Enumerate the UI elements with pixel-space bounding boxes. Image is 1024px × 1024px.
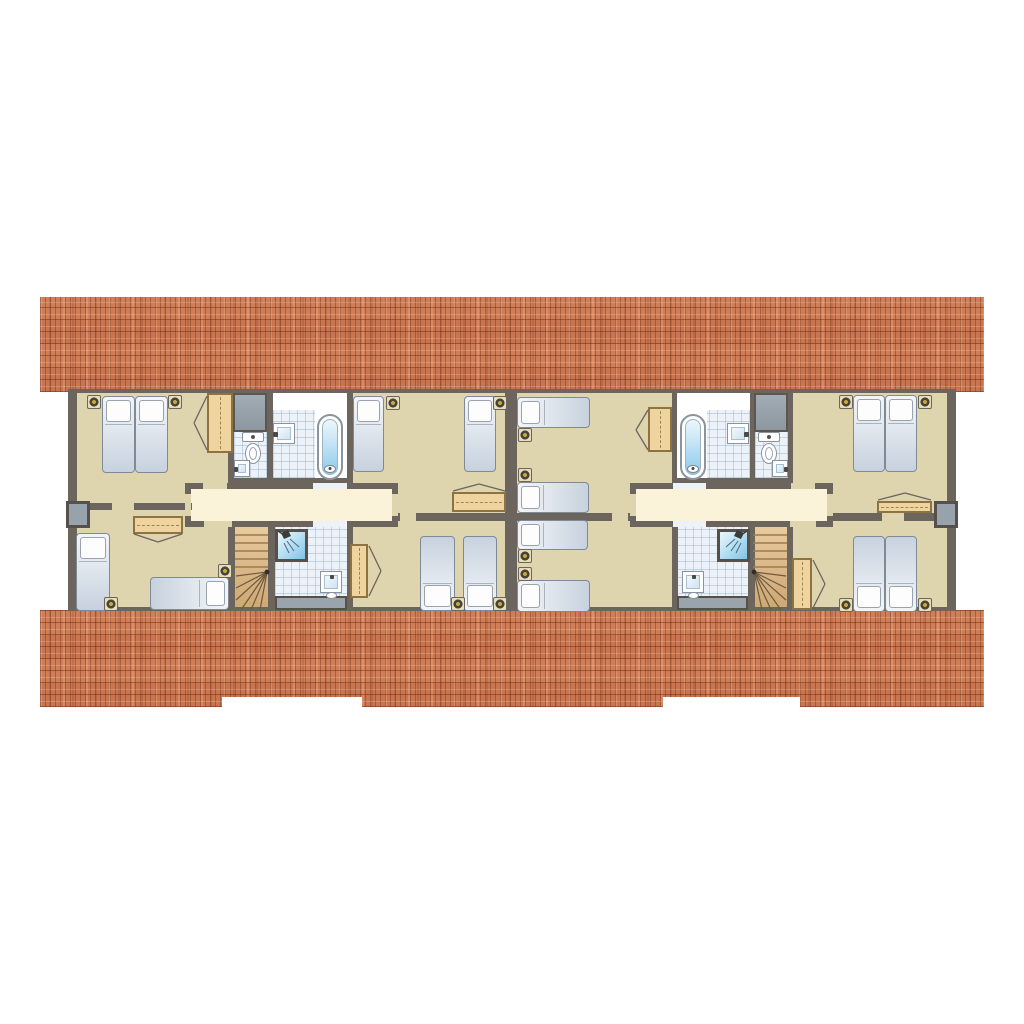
single-bed bbox=[150, 577, 229, 610]
washbasin-pedestal bbox=[688, 592, 699, 599]
washbasin-pedestal bbox=[326, 592, 337, 599]
bedside-lamp-icon bbox=[918, 598, 932, 612]
bathtub bbox=[317, 414, 343, 480]
door-opening bbox=[203, 483, 227, 489]
door-opening bbox=[392, 494, 398, 516]
door-opening bbox=[630, 494, 636, 516]
washbasin bbox=[682, 571, 704, 593]
shower-room-counter-left bbox=[275, 596, 347, 610]
single-bed bbox=[464, 396, 496, 472]
bedside-lamp-icon bbox=[87, 395, 101, 409]
door-opening bbox=[313, 483, 347, 489]
washbasin bbox=[320, 571, 342, 593]
door-opening bbox=[185, 494, 191, 516]
bedside-lamp-icon bbox=[386, 396, 400, 410]
bedside-lamp-icon bbox=[104, 597, 118, 611]
single-bed bbox=[517, 580, 590, 612]
wardrobe bbox=[207, 393, 233, 453]
flue-box-left bbox=[66, 501, 90, 528]
bedside-lamp-icon bbox=[518, 567, 532, 581]
door-opening bbox=[673, 483, 706, 489]
shower-cabin bbox=[717, 529, 750, 562]
bedside-lamp-icon bbox=[839, 395, 853, 409]
exterior-wall-right bbox=[947, 389, 956, 611]
door-opening bbox=[827, 494, 833, 516]
stairs-left bbox=[235, 527, 268, 611]
single-bed bbox=[353, 396, 384, 472]
toilet-tank bbox=[242, 432, 264, 442]
flue-box-right bbox=[934, 501, 958, 528]
bedside-lamp-icon bbox=[839, 598, 853, 612]
washbasin bbox=[727, 423, 749, 444]
single-bed bbox=[463, 536, 497, 611]
door-opening bbox=[400, 513, 416, 521]
bedside-lamp-icon bbox=[918, 395, 932, 409]
wall-bedroom5-bath-right bbox=[672, 391, 677, 484]
door-opening bbox=[112, 503, 134, 510]
wall-wc-bedroom6-right bbox=[788, 391, 793, 484]
bedside-lamp-icon bbox=[493, 597, 507, 611]
door-opening bbox=[204, 521, 232, 527]
dresser bbox=[133, 516, 183, 534]
single-bed bbox=[102, 396, 135, 473]
wardrobe bbox=[792, 558, 812, 610]
hand-basin bbox=[772, 460, 788, 477]
roof-eaves-notch-right bbox=[663, 697, 800, 707]
single-bed bbox=[885, 395, 917, 472]
door-opening bbox=[882, 513, 904, 521]
wall-stairs-shower-left bbox=[268, 527, 275, 610]
door-opening bbox=[313, 521, 347, 527]
single-bed bbox=[517, 520, 588, 550]
single-bed bbox=[135, 396, 168, 473]
single-bed bbox=[517, 482, 589, 513]
single-bed bbox=[853, 536, 885, 612]
single-bed bbox=[517, 397, 590, 428]
roof-eaves-notch-left bbox=[222, 697, 362, 707]
toilet-tank bbox=[758, 432, 780, 442]
dresser bbox=[452, 492, 506, 512]
stairs-right bbox=[753, 527, 787, 611]
shower-room-counter-right bbox=[677, 596, 748, 610]
bedside-lamp-icon bbox=[518, 549, 532, 563]
shower-cabin bbox=[275, 529, 308, 562]
bedside-lamp-icon bbox=[168, 395, 182, 409]
door-opening bbox=[612, 513, 628, 521]
roof-band-top bbox=[40, 297, 984, 392]
utility-cabinet bbox=[754, 393, 788, 432]
door-opening bbox=[673, 521, 706, 527]
floor-plan-canvas bbox=[0, 0, 1024, 1024]
washbasin bbox=[273, 423, 295, 444]
wardrobe bbox=[648, 407, 672, 452]
single-bed bbox=[853, 395, 885, 472]
door-opening bbox=[791, 483, 815, 489]
bedside-lamp-icon bbox=[451, 597, 465, 611]
wardrobe bbox=[350, 544, 368, 598]
dresser bbox=[877, 501, 932, 513]
bedside-lamp-icon bbox=[493, 396, 507, 410]
wall-bedroom1-bottom-b bbox=[134, 503, 192, 510]
bedside-lamp-icon bbox=[518, 468, 532, 482]
bathtub bbox=[680, 414, 706, 480]
roof-band-bottom bbox=[40, 610, 984, 707]
utility-cabinet bbox=[233, 393, 267, 432]
party-wall bbox=[505, 389, 517, 611]
single-bed bbox=[420, 536, 455, 611]
bedside-lamp-icon bbox=[518, 428, 532, 442]
hand-basin bbox=[234, 460, 250, 477]
single-bed bbox=[885, 536, 917, 612]
bedside-lamp-icon bbox=[218, 564, 232, 578]
door-opening bbox=[790, 521, 816, 527]
